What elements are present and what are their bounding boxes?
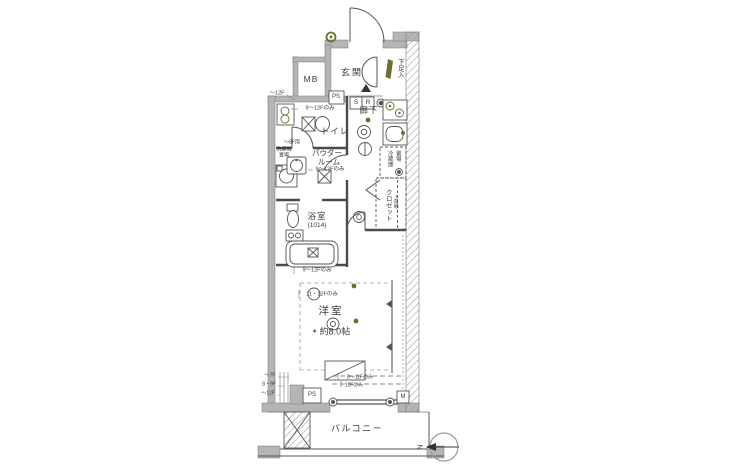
annotation-room-upper: 9〜12Fのみ [302, 268, 331, 274]
mb-label: MB [304, 75, 319, 84]
room-label-shoe-box: 下足入 [396, 58, 403, 78]
room-label-powder-1: パウダー [312, 149, 342, 157]
room-label-toilet: トイレ [321, 127, 350, 136]
size-marker: ✦ [312, 329, 318, 336]
annotation-wall-3: 〜12F [261, 392, 275, 397]
washer-floor-note: 〜8F用 [284, 141, 300, 146]
room-label-western: 洋室 [319, 306, 344, 317]
room-label-genkan: 玄関 [341, 69, 363, 78]
north-label: N [418, 444, 425, 449]
floorplan: MB 玄関 下足入 PS S R 廊下 〜12F 9〜12Fのみ トイレ 〜8F… [0, 0, 730, 470]
wall-layers [278, 372, 289, 403]
closet-bifold-door [366, 180, 380, 200]
m-label: M [401, 394, 406, 400]
room-label-closet: クロゼット [384, 189, 391, 222]
ps-upper-label: PS [332, 94, 340, 100]
closet-shelf-note: 上段棚 [394, 195, 399, 209]
floorplan-drawing [0, 0, 730, 470]
annotation-room-lower: 11・12Fのみ [306, 292, 338, 298]
room-label-powder-2: ルーム [318, 158, 340, 166]
annotation-window-lower: 12Fのみ [345, 384, 364, 389]
s-label: S [354, 100, 358, 107]
stove [383, 100, 407, 120]
annotation-toilet: 9〜12Fのみ [305, 106, 334, 112]
fridge-label-1: 冷蔵庫 [386, 151, 392, 168]
shoe-icon [386, 59, 394, 79]
room-label-hallway: 廊下 [359, 106, 378, 115]
hatched-wall [406, 32, 419, 412]
annotation-wall-1: 〜7F [265, 374, 276, 379]
washer-label-2: 置場 [279, 154, 289, 159]
annotation-window-upper: 8〜11Fのみ [347, 376, 373, 381]
annotation-wall-2: 8・9F [262, 383, 276, 388]
fridge-label-2: 置場 [394, 151, 400, 162]
entrance-door-arc [350, 8, 384, 42]
room-label-balcony: バルコニー [331, 425, 383, 434]
room-size-western: ✦ 約8.0帖 [312, 328, 350, 337]
annotation-powder: 9〜12Fのみ [315, 167, 344, 173]
bath-mirror [287, 204, 298, 211]
bath-size-label: (1014) [308, 223, 327, 230]
size-value: 約8.0帖 [320, 328, 351, 337]
ps-lower-label: PS [308, 392, 316, 398]
annotation-left-top: 〜12F [270, 91, 285, 97]
bath-basin [288, 211, 299, 228]
room-label-bath: 浴室 [307, 212, 326, 221]
